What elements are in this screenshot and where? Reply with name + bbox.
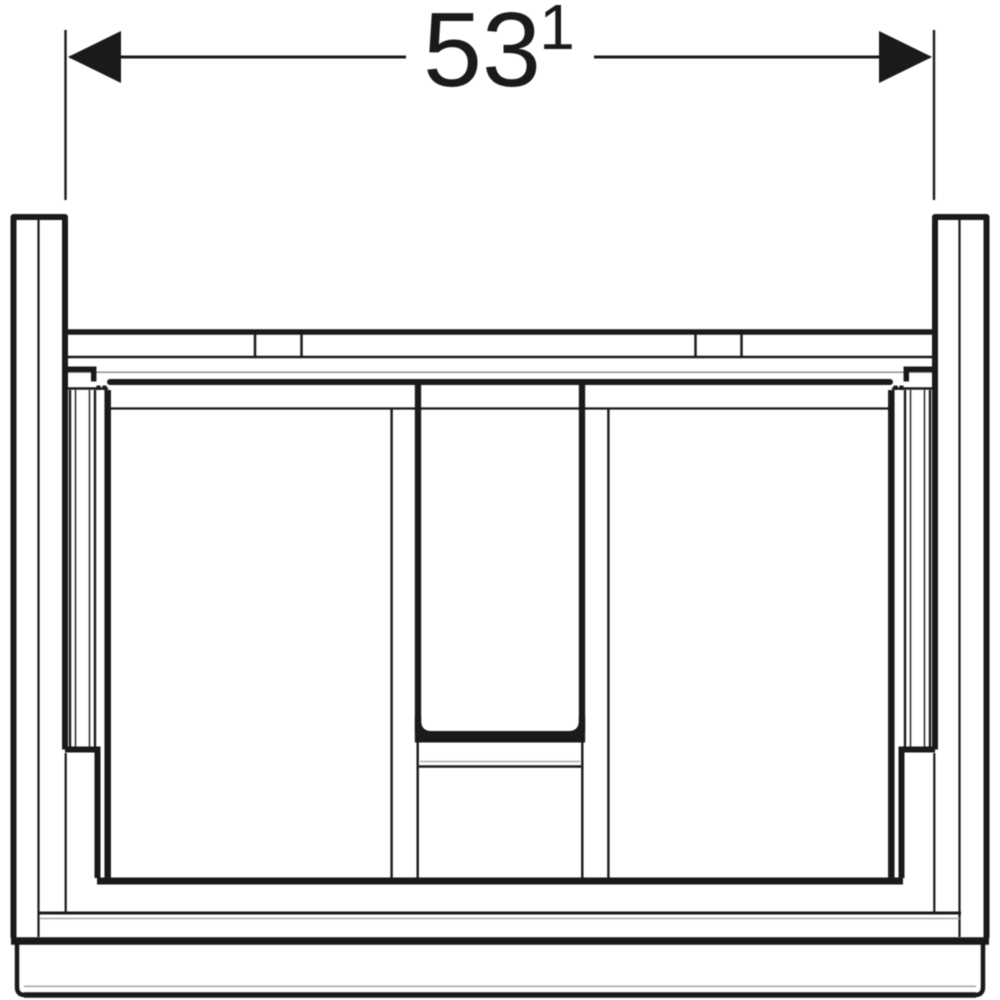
svg-text:53: 53	[423, 0, 541, 109]
svg-text:1: 1	[539, 0, 575, 63]
